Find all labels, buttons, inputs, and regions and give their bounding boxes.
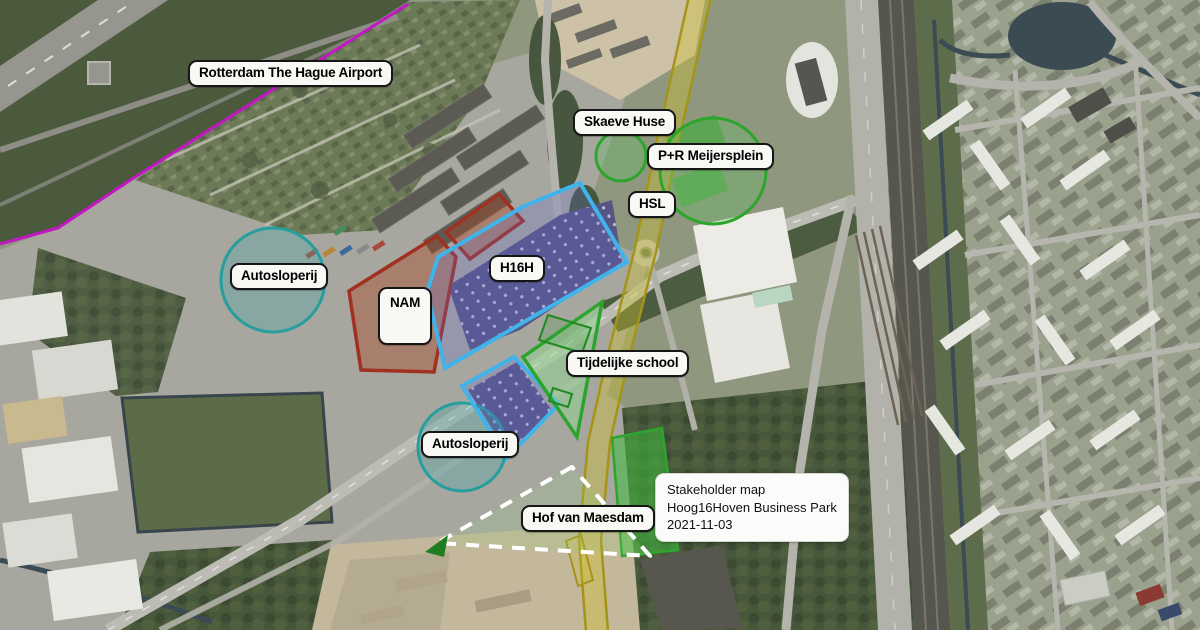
map-caption: Stakeholder map Hoog16Hoven Business Par…	[655, 473, 849, 542]
map-label-skaeve-huse: Skaeve Huse	[573, 109, 676, 136]
map-label-hof-van-maesdam: Hof van Maesdam	[521, 505, 655, 532]
map-label-autosloperij-south: Autosloperij	[421, 431, 519, 458]
map-label-nam: NAM	[378, 287, 432, 345]
stakeholder-map: Rotterdam The Hague Airport Skaeve Huse …	[0, 0, 1200, 630]
skaeve-huse-circle	[596, 131, 646, 181]
map-label-autosloperij-west: Autosloperij	[230, 263, 328, 290]
caption-title: Stakeholder map	[667, 481, 837, 499]
map-label-pr-meijersplein: P+R Meijersplein	[647, 143, 774, 170]
caption-date: 2021-11-03	[667, 516, 837, 534]
map-label-airport: Rotterdam The Hague Airport	[188, 60, 393, 87]
map-label-hsl: HSL	[628, 191, 676, 218]
caption-subject: Hoog16Hoven Business Park	[667, 499, 837, 517]
map-label-tijdelijke-school: Tijdelijke school	[566, 350, 689, 377]
map-label-h16h: H16H	[489, 255, 545, 282]
satellite-basemap	[0, 0, 1200, 630]
